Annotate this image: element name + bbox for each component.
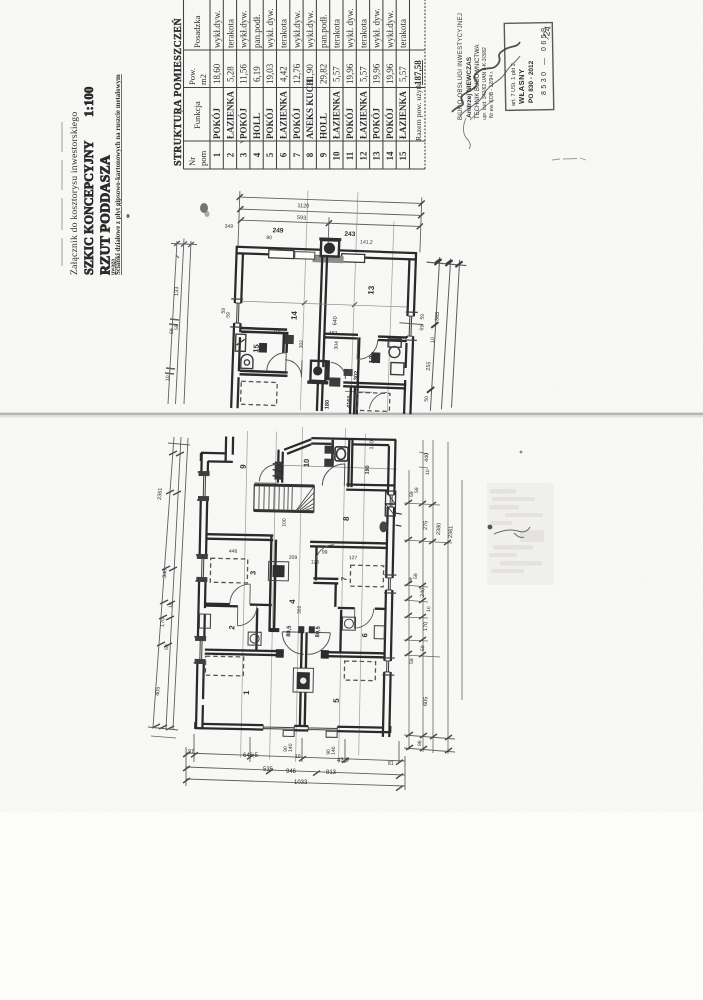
svg-text:90: 90 — [266, 235, 272, 241]
svg-text:59: 59 — [409, 658, 415, 664]
svg-text:5,57: 5,57 — [332, 66, 342, 82]
svg-text:10: 10 — [332, 151, 342, 161]
svg-text:2380: 2380 — [436, 523, 442, 535]
svg-text:1:100: 1:100 — [81, 87, 96, 117]
svg-text:10: 10 — [302, 459, 311, 468]
svg-text:275: 275 — [423, 521, 429, 530]
svg-text:3: 3 — [239, 152, 249, 157]
svg-text:140: 140 — [288, 743, 294, 752]
svg-text:59: 59 — [174, 324, 180, 330]
svg-text:Nr: Nr — [187, 157, 197, 166]
svg-text:18,60: 18,60 — [212, 63, 222, 84]
svg-text:59: 59 — [164, 644, 170, 650]
svg-text:302: 302 — [297, 605, 303, 614]
svg-text:170: 170 — [160, 618, 167, 628]
svg-text:4,42: 4,42 — [279, 66, 289, 82]
svg-text:10: 10 — [426, 606, 432, 612]
svg-text:180: 180 — [324, 400, 331, 410]
svg-text:ŁAZIENKA: ŁAZIENKA — [358, 90, 368, 139]
svg-text:86: 86 — [417, 740, 423, 746]
svg-text:6: 6 — [360, 633, 369, 638]
svg-text:6,19: 6,19 — [252, 66, 262, 82]
svg-text:upr. bud. 342/62 UAN II-K-3/3: upr. bud. 342/62 UAN II-K-3/3/82 — [482, 47, 488, 120]
svg-text:97: 97 — [188, 749, 194, 755]
svg-text:14: 14 — [289, 310, 299, 320]
svg-text:127: 127 — [349, 555, 358, 561]
svg-text:5,57: 5,57 — [398, 66, 408, 82]
svg-text:POKÓJ: POKÓJ — [372, 108, 382, 139]
svg-text:1033: 1033 — [294, 780, 308, 786]
svg-text:10: 10 — [168, 602, 174, 608]
svg-text:10: 10 — [295, 754, 301, 760]
svg-text:340: 340 — [162, 569, 169, 579]
svg-text:209: 209 — [289, 555, 298, 561]
svg-text:5,28: 5,28 — [225, 66, 235, 82]
svg-text:15: 15 — [251, 344, 261, 353]
svg-text:946: 946 — [286, 769, 297, 775]
svg-text:13: 13 — [366, 285, 376, 295]
svg-text:9: 9 — [318, 152, 328, 157]
svg-text:440: 440 — [424, 453, 430, 462]
svg-text:pan.podł.: pan.podł. — [252, 15, 262, 49]
svg-text:Ścianki działowe z płyt gipsow: Ścianki działowe z płyt gipsowo-kartonow… — [114, 74, 122, 275]
svg-text:Pow.: Pow. — [187, 68, 197, 85]
svg-text:59: 59 — [225, 312, 231, 318]
svg-text:10: 10 — [165, 375, 171, 381]
svg-text:605: 605 — [423, 697, 429, 706]
svg-text:Funkcja: Funkcja — [192, 101, 202, 129]
svg-text:PO 830 - 2012: PO 830 - 2012 — [528, 60, 535, 103]
svg-text:19,96: 19,96 — [345, 63, 355, 84]
svg-text:304: 304 — [333, 341, 340, 350]
svg-text:126: 126 — [311, 559, 320, 565]
svg-text:19,96: 19,96 — [385, 63, 395, 84]
svg-text:2: 2 — [225, 152, 235, 157]
svg-text:80,5: 80,5 — [286, 625, 293, 637]
svg-text:10: 10 — [430, 337, 436, 343]
svg-text:SZKIC KONCEPCYJNY: SZKIC KONCEPCYJNY — [82, 140, 96, 275]
svg-text:59: 59 — [420, 645, 426, 651]
svg-text:7: 7 — [339, 577, 348, 582]
svg-text:302: 302 — [298, 340, 305, 349]
svg-text:249: 249 — [272, 227, 283, 234]
svg-text:190: 190 — [365, 465, 371, 474]
svg-text:133: 133 — [174, 287, 180, 296]
svg-text:141,2: 141,2 — [360, 239, 373, 245]
svg-text:255: 255 — [426, 361, 433, 371]
svg-text:POKÓJ: POKÓJ — [385, 108, 395, 139]
svg-text:170: 170 — [423, 622, 429, 631]
svg-text:ŁAZIENKA: ŁAZIENKA — [225, 90, 235, 139]
svg-text:100: 100 — [281, 518, 287, 527]
svg-text:349: 349 — [225, 224, 234, 230]
svg-text:2361: 2361 — [157, 488, 164, 501]
svg-text:wykł. dyw.: wykł. dyw. — [372, 8, 382, 48]
svg-text:HOLL: HOLL — [318, 113, 328, 139]
svg-text:14: 14 — [385, 151, 395, 161]
svg-text:3: 3 — [248, 571, 257, 576]
svg-text:19,03: 19,03 — [265, 63, 275, 84]
svg-text:RZUT PODDASZA: RZUT PODDASZA — [98, 155, 113, 275]
svg-text:6: 6 — [279, 152, 289, 157]
svg-text:15: 15 — [398, 151, 408, 161]
svg-text:wykł.dyw.: wykł.dyw. — [385, 11, 395, 48]
svg-text:pom: pom — [198, 150, 208, 166]
svg-text:12: 12 — [367, 355, 377, 364]
svg-text:446: 446 — [229, 549, 238, 555]
svg-text:81: 81 — [388, 761, 394, 767]
svg-text:wykł. dyw.: wykł. dyw. — [345, 8, 355, 48]
svg-text:12: 12 — [358, 151, 368, 161]
svg-text:wykł.dyw.: wykł.dyw. — [239, 11, 249, 48]
svg-text:365: 365 — [435, 312, 442, 322]
svg-text:8: 8 — [305, 152, 315, 157]
svg-text:terakota: terakota — [398, 19, 408, 48]
svg-text:WŁASNY: WŁASNY — [517, 69, 526, 105]
svg-text:terakota: terakota — [358, 19, 368, 48]
svg-text:152: 152 — [329, 330, 338, 336]
svg-text:59: 59 — [420, 314, 426, 320]
svg-text:99: 99 — [322, 550, 328, 556]
svg-text:5: 5 — [265, 152, 275, 157]
svg-text:POKÓJ: POKÓJ — [292, 108, 302, 139]
svg-text:POKÓJ: POKÓJ — [239, 108, 249, 139]
svg-text:302: 302 — [353, 371, 360, 381]
svg-text:ŁAZIENKA: ŁAZIENKA — [279, 90, 289, 139]
svg-text:POKÓJ: POKÓJ — [265, 108, 275, 139]
svg-text:Razem pow. użytk.: Razem pow. użytk. — [414, 81, 423, 141]
svg-text:535: 535 — [263, 767, 274, 773]
svg-text:2: 2 — [227, 625, 236, 630]
svg-text:100: 100 — [273, 328, 282, 334]
svg-text:terakota: terakota — [332, 19, 342, 48]
svg-text:11: 11 — [345, 151, 355, 160]
svg-text:59: 59 — [414, 487, 420, 493]
svg-text:wykł.dyw.: wykł.dyw. — [212, 11, 222, 48]
svg-text:240: 240 — [420, 588, 426, 597]
svg-text:640: 640 — [332, 316, 339, 326]
svg-text:HOLL: HOLL — [252, 113, 262, 139]
svg-text:243: 243 — [344, 231, 355, 238]
svg-text:wykł.dyw.: wykł.dyw. — [292, 11, 302, 48]
svg-text:1: 1 — [212, 152, 222, 157]
svg-text:Andrzej NIEWCZAS: Andrzej NIEWCZAS — [466, 56, 473, 118]
svg-text:140: 140 — [331, 746, 337, 755]
svg-text:11,56: 11,56 — [239, 64, 249, 84]
svg-text:pan.podł.: pan.podł. — [318, 15, 328, 49]
svg-text:4160: 4160 — [346, 395, 353, 408]
svg-text:ŁAZIENKA: ŁAZIENKA — [332, 90, 342, 139]
svg-text:1120: 1120 — [297, 203, 309, 209]
svg-text:405: 405 — [155, 687, 162, 697]
svg-text:m2: m2 — [198, 74, 208, 85]
svg-text:19,96: 19,96 — [372, 63, 382, 84]
svg-text:4: 4 — [252, 152, 262, 157]
svg-text:ANEKS KUCH.: ANEKS KUCH. — [305, 76, 315, 139]
svg-text:terakota: terakota — [279, 19, 289, 48]
svg-text:Załącznik do kosztorysu inwest: Załącznik do kosztorysu inwestorskiego — [69, 112, 80, 275]
svg-text:50: 50 — [424, 396, 430, 402]
svg-text:59: 59 — [413, 573, 419, 579]
svg-text:STRUKTURA POMIESZCZEŃ: STRUKTURA POMIESZCZEŃ — [172, 18, 184, 166]
svg-text:10: 10 — [425, 469, 431, 475]
svg-text:29,82: 29,82 — [318, 64, 328, 84]
svg-text:Nr ew. KOB - 12/94 r.: Nr ew. KOB - 12/94 r. — [489, 71, 495, 118]
svg-text:593: 593 — [297, 215, 306, 221]
svg-text:11,90: 11,90 — [305, 64, 315, 84]
svg-text:7: 7 — [292, 152, 302, 157]
svg-text:646,5: 646,5 — [243, 753, 259, 759]
svg-text:ŁAZIENKA: ŁAZIENKA — [398, 90, 408, 139]
svg-text:140: 140 — [369, 440, 376, 450]
svg-text:187,58: 187,58 — [413, 60, 423, 85]
svg-text:813: 813 — [326, 770, 337, 776]
svg-text:terakota: terakota — [225, 19, 235, 48]
svg-text:80,5: 80,5 — [315, 625, 322, 637]
svg-text:59: 59 — [419, 325, 425, 331]
svg-text:13: 13 — [372, 151, 382, 161]
svg-text:12,76: 12,76 — [292, 63, 302, 84]
svg-text:Posadzka: Posadzka — [192, 15, 202, 48]
svg-text:wykł.dyw.: wykł.dyw. — [305, 11, 315, 48]
svg-text:POKÓJ: POKÓJ — [345, 108, 355, 139]
svg-text:2361: 2361 — [448, 526, 454, 538]
svg-text:43,9: 43,9 — [337, 758, 349, 764]
svg-text:POKÓJ: POKÓJ — [212, 108, 222, 139]
svg-text:wykł. dyw.: wykł. dyw. — [265, 8, 275, 48]
svg-text:5,57: 5,57 — [358, 66, 368, 82]
